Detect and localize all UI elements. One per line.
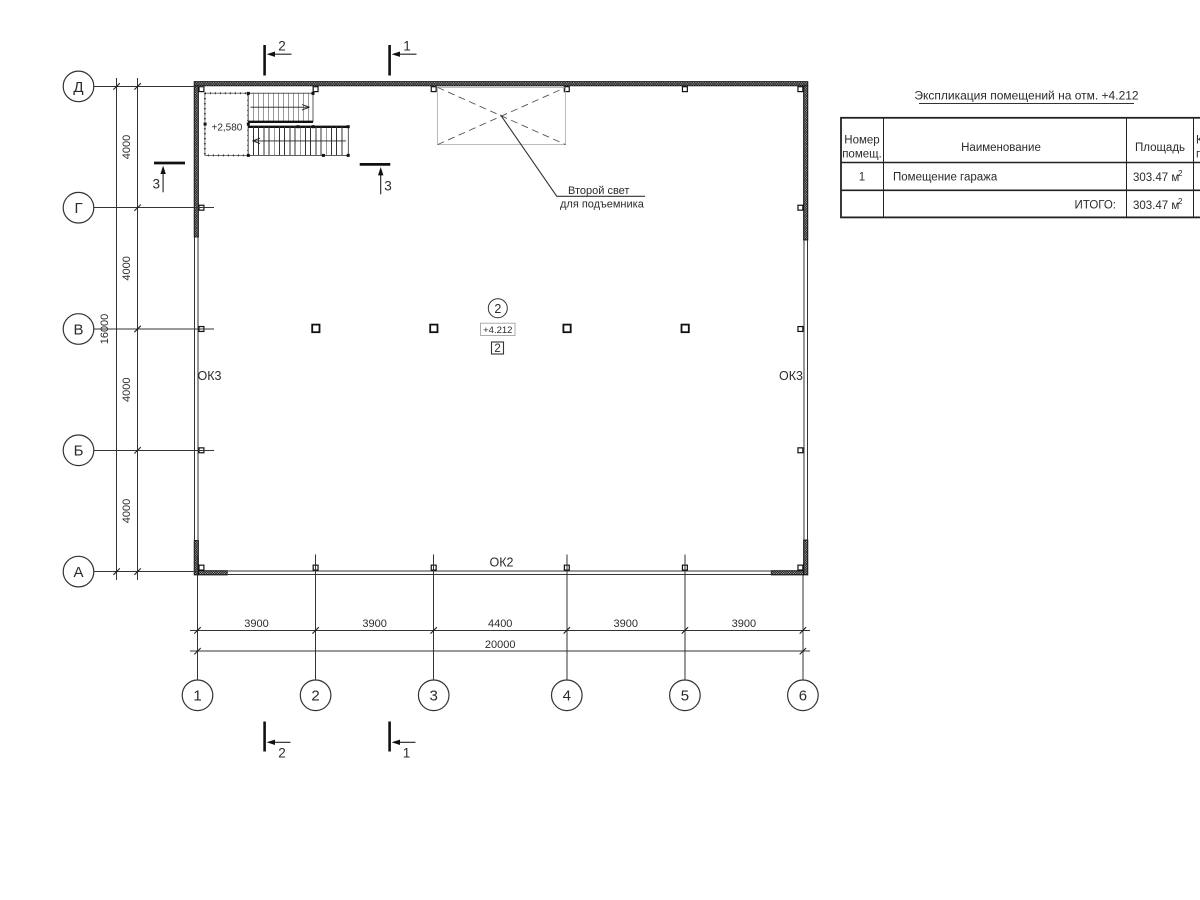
svg-text:4000: 4000 [121,135,133,159]
svg-text:2: 2 [278,39,286,54]
svg-text:4: 4 [563,688,571,705]
svg-text:3: 3 [430,688,438,705]
svg-text:Номер: Номер [844,135,879,147]
svg-text:1: 1 [403,39,411,54]
svg-text:Г: Г [74,200,82,217]
svg-text:3900: 3900 [614,618,638,630]
svg-text:по: по [1196,149,1200,161]
svg-text:Второй свет: Второй свет [568,185,629,197]
svg-text:303.47 м: 303.47 м [1133,172,1179,184]
svg-text:1: 1 [859,172,865,184]
svg-text:3900: 3900 [244,618,268,630]
svg-text:А: А [73,564,83,581]
svg-text:Наименование: Наименование [961,142,1041,154]
svg-text:Площадь: Площадь [1135,142,1185,154]
svg-text:3: 3 [384,178,392,193]
svg-text:Ка: Ка [1196,135,1200,147]
svg-text:3: 3 [153,176,161,191]
svg-text:20000: 20000 [485,639,516,651]
svg-text:2: 2 [278,746,286,761]
svg-text:4000: 4000 [121,256,133,280]
svg-text:помещ.: помещ. [842,149,882,161]
svg-text:6: 6 [799,688,807,705]
svg-text:1: 1 [193,688,201,705]
svg-text:ОК3: ОК3 [198,369,222,383]
svg-text:3900: 3900 [732,618,756,630]
svg-text:+4.212: +4.212 [483,325,512,336]
svg-text:Помещение гаража: Помещение гаража [893,172,998,184]
svg-text:2: 2 [494,302,501,316]
svg-text:4000: 4000 [121,499,133,523]
svg-text:2: 2 [1178,197,1183,206]
svg-text:303.47 м: 303.47 м [1133,200,1179,212]
svg-text:4400: 4400 [488,618,512,630]
svg-text:для подъемника: для подъемника [560,199,645,211]
svg-text:2: 2 [1178,169,1183,178]
svg-text:Б: Б [74,443,84,460]
svg-text:16000: 16000 [99,314,111,345]
svg-text:ОК2: ОК2 [490,556,514,570]
svg-text:1: 1 [403,746,411,761]
svg-text:ОК3: ОК3 [779,369,803,383]
svg-text:4000: 4000 [121,377,133,401]
svg-text:В: В [73,321,83,338]
svg-text:Д: Д [73,79,83,96]
svg-text:2: 2 [311,688,319,705]
svg-text:ИТОГО:: ИТОГО: [1075,200,1116,212]
svg-text:+2,580: +2,580 [212,122,243,133]
svg-text:2: 2 [494,343,500,355]
svg-text:5: 5 [681,688,689,705]
svg-text:Экспликация помещений на отм.: Экспликация помещений на отм. +4.212 [914,89,1139,103]
svg-text:3900: 3900 [362,618,386,630]
